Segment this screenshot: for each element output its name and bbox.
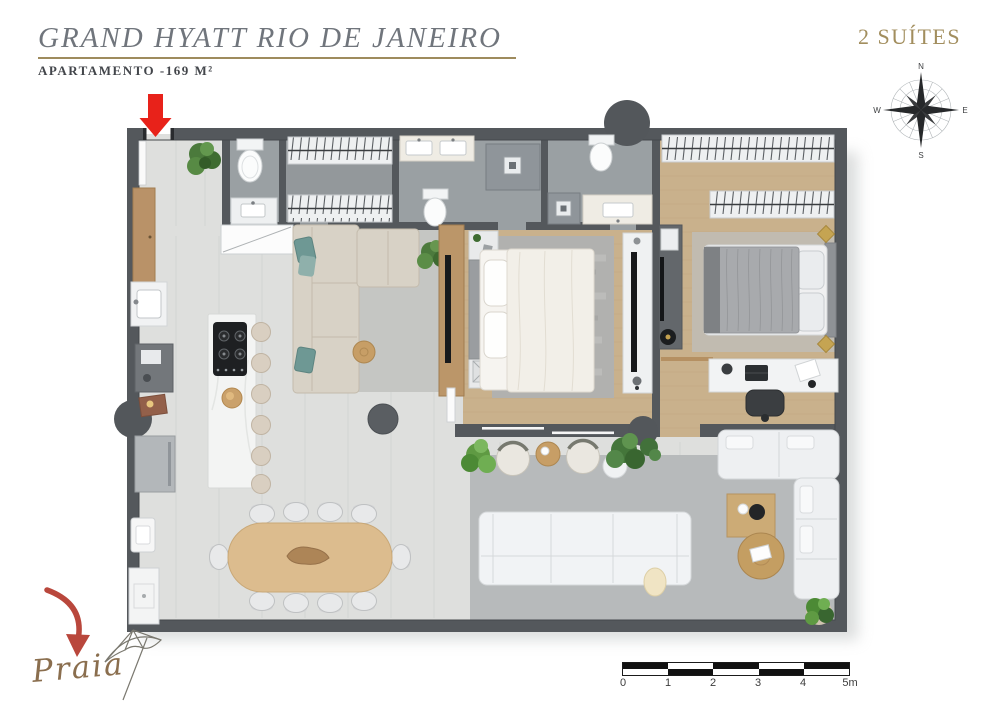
entry-door-leaf [139,141,146,185]
beach-label: Praia [30,646,126,690]
pillow [797,251,824,289]
scale-bar-segment [668,663,713,675]
scale-label: 1 [665,677,671,689]
pouf [644,568,666,596]
shelf [661,357,713,361]
scale-bar-segments [622,662,850,676]
beach-annotation: Praia [25,578,180,706]
scale-bar: 0 1 2 3 4 5m [622,660,850,694]
pillow [797,293,824,331]
compass-north-label: N [918,62,924,71]
scale-bar-segment [623,663,668,675]
scale-label: 3 [755,677,761,689]
plant [805,598,834,625]
scale-label: 0 [620,677,626,689]
compass-south-label: S [918,151,923,160]
headboard [469,260,480,359]
red-curved-arrow-icon [47,590,90,657]
page-title: GRAND HYATT RIO DE JANEIRO [38,22,502,55]
scale-label: 5m [842,677,857,689]
pillow [298,255,317,277]
compass-rose-icon: N E S W [864,58,978,162]
suites-label: 2 SUÍTES [858,24,961,50]
title-underline [38,57,516,59]
toilet [423,189,448,199]
pillow [484,312,509,358]
bedroom-door-leaf [447,388,455,422]
bed-throw [704,247,720,333]
scale-bar-segment [713,663,758,675]
scale-label: 4 [800,677,806,689]
compass-west-label: W [873,106,881,115]
entry-console [133,188,155,286]
tv [631,252,637,372]
floor-plan-page: GRAND HYATT RIO DE JANEIRO APARTAMENTO -… [0,0,1000,706]
compass-cardinal-points [883,72,959,148]
tv [660,257,664,321]
tv-console [623,233,652,393]
toilet [237,139,263,150]
scale-bar-labels: 0 1 2 3 4 5m [622,677,848,693]
tv-panel [439,225,464,396]
office-chair [746,390,784,416]
pillow [294,347,316,374]
scale-bar-segment [759,663,804,675]
side-table [353,341,375,363]
tv [445,255,451,363]
desk-lamp [722,364,733,375]
pillow [484,260,509,306]
ottoman [368,404,398,434]
apartment-subtitle: APARTAMENTO -169 M² [38,63,214,79]
scale-bar-segment [804,663,849,675]
scale-label: 2 [710,677,716,689]
compass-east-label: E [962,106,967,115]
